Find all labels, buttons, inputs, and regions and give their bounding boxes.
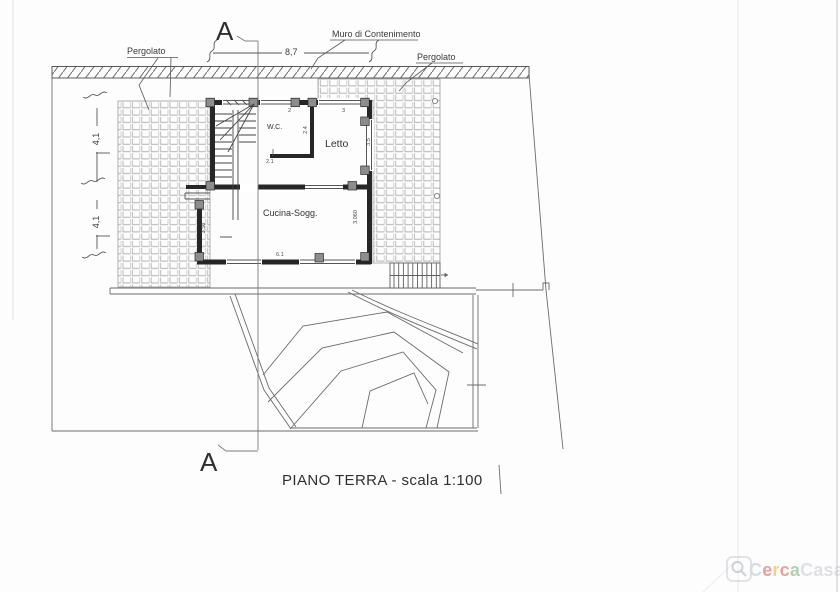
watermark-logo-box xyxy=(727,557,751,581)
garden-terrace-line-2 xyxy=(268,332,449,428)
pergola-post xyxy=(434,193,439,198)
label-muro-di-contenimento: Muro di Contenimento xyxy=(332,29,421,39)
boundary-right-lower xyxy=(546,290,563,449)
dim-letto-depth: 3.5 xyxy=(366,138,372,146)
dim-cucina-width: 6.1 xyxy=(276,252,284,258)
dim-wc-window: 2 xyxy=(288,108,291,114)
floor-plan-drawing: A A Pergolato Muro di Contenimento Pergo… xyxy=(0,0,840,592)
garden-path-edge-1 xyxy=(230,296,291,429)
steps-arrow-head xyxy=(445,273,448,277)
scanned-floor-plan-page: A A Pergolato Muro di Contenimento Pergo… xyxy=(0,0,840,592)
garden-terrace-line-3 xyxy=(291,352,436,428)
curved-path-1 xyxy=(348,292,477,349)
room-label-cucina-sogg: Cucina-Sogg. xyxy=(263,208,318,218)
retaining-wall xyxy=(52,67,529,79)
boundary-right-upper xyxy=(529,74,546,290)
room-label-letto: Letto xyxy=(325,138,349,150)
curved-path-2 xyxy=(352,290,478,344)
dim-break-mark xyxy=(369,40,379,62)
cercacasa-watermark: CercaCasa xyxy=(727,557,840,581)
dim-wc-depth: 2.4 xyxy=(303,126,309,134)
dim-letto-window: 3 xyxy=(342,108,345,114)
retaining-wall-strip xyxy=(52,67,529,79)
dim-break-mark xyxy=(81,171,105,192)
dim-cucina-right: 3.060 xyxy=(353,210,359,224)
exterior-steps xyxy=(390,263,448,288)
garden-terrace-line-4 xyxy=(362,373,428,428)
label-pergolato-right: Pergolato xyxy=(417,52,456,62)
boundary-stub xyxy=(499,465,501,494)
dim-left-upper: 4,1 xyxy=(91,133,101,146)
drawing-title: PIANO TERRA - scala 1:100 xyxy=(282,472,483,489)
dim-top-width: 8,7 xyxy=(285,47,298,57)
dim-break-mark xyxy=(83,85,107,106)
staircase xyxy=(215,104,256,237)
dimension-left xyxy=(81,85,110,266)
watermark-wordmark: CercaCasa xyxy=(749,560,840,580)
garden-path-edge-2 xyxy=(235,294,296,427)
section-label-bottom: A xyxy=(200,447,218,477)
dim-break-mark xyxy=(82,245,106,266)
terrace-garden xyxy=(110,283,543,429)
dim-left-lower: 4,1 xyxy=(91,216,101,229)
section-label-top: A xyxy=(216,16,234,46)
garden-terrace-line-1 xyxy=(263,312,463,375)
dim-cucina-left: 3.50 xyxy=(201,223,207,234)
dim-wc-door: 2.1 xyxy=(266,159,274,165)
room-label-wc: W.C. xyxy=(267,124,282,131)
pergola-post xyxy=(432,98,437,103)
label-pergolato-left: Pergolato xyxy=(127,46,166,56)
